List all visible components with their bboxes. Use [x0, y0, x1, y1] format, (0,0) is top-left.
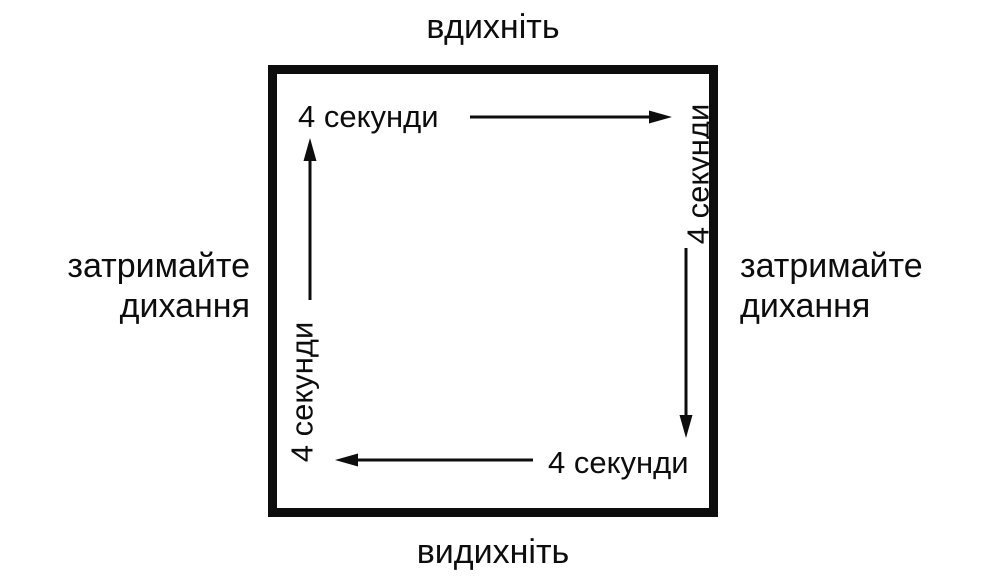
- duration-label-right: 4 секунди: [683, 104, 714, 245]
- hold-breath-label-left: затримайте дихання: [50, 246, 250, 326]
- hold-breath-left-line2: дихання: [50, 286, 250, 326]
- arrow-down-icon: [678, 248, 694, 438]
- duration-label-left: 4 секунди: [287, 322, 318, 463]
- arrow-left-icon: [335, 452, 535, 468]
- inhale-label: вдихніть: [268, 9, 718, 46]
- hold-breath-left-line1: затримайте: [50, 246, 250, 286]
- exhale-label: видихніть: [268, 534, 718, 571]
- box-breathing-diagram: вдихніть видихніть затримайте дихання за…: [0, 0, 990, 578]
- arrow-up-icon: [302, 138, 318, 302]
- duration-label-bottom: 4 секунди: [548, 447, 689, 478]
- hold-breath-right-line2: дихання: [740, 286, 940, 326]
- duration-label-top: 4 секунди: [298, 101, 439, 132]
- hold-breath-right-line1: затримайте: [740, 246, 940, 286]
- arrow-right-icon: [470, 109, 672, 125]
- hold-breath-label-right: затримайте дихання: [740, 246, 940, 326]
